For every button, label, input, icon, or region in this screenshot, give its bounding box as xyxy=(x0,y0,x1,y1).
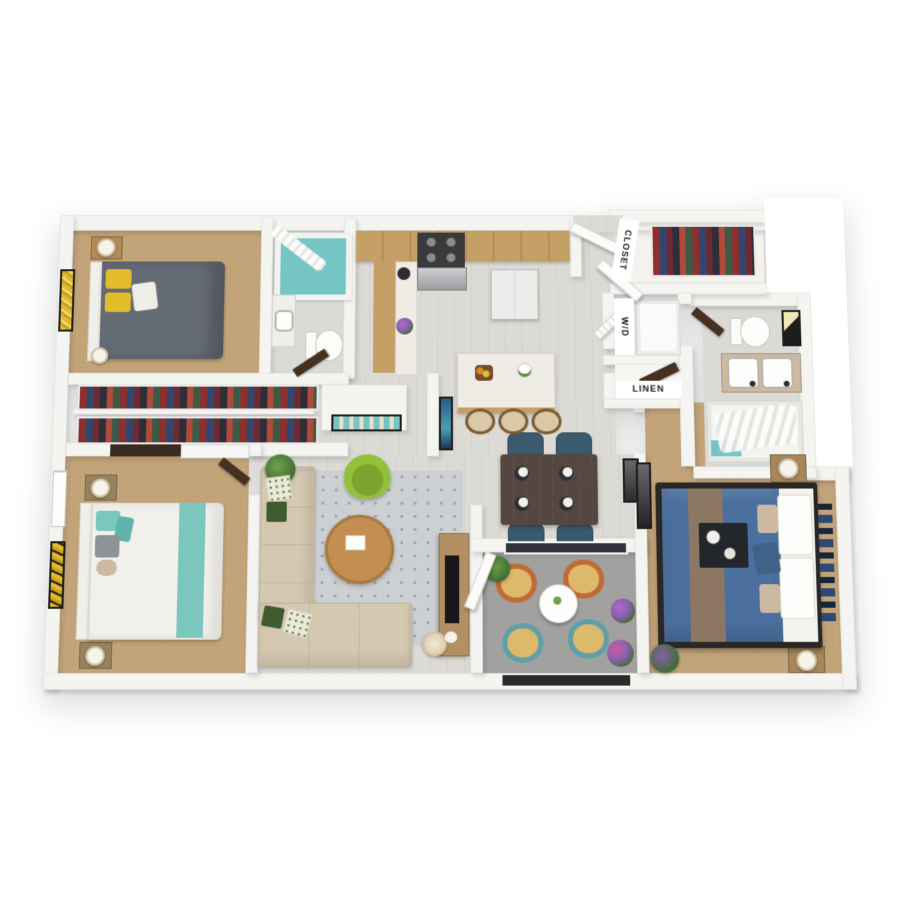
bedroom1-wall-art xyxy=(58,269,75,331)
patio-table-kiwi xyxy=(553,596,561,604)
bedroom1-pillow-yellow-2 xyxy=(105,293,131,312)
apartment-floorplan: CLOSET W/D LINEN xyxy=(43,210,858,701)
bedroom2-window xyxy=(51,470,67,527)
bedroom2-pillow-gray xyxy=(95,535,120,557)
master-lamp-bottom xyxy=(796,650,817,671)
tv-screen xyxy=(445,555,459,623)
washer-dryer-label: W/D xyxy=(614,298,635,355)
sofa-pillow-green-1 xyxy=(266,502,287,522)
island-stool-3 xyxy=(531,408,561,434)
kitchen-refrigerator xyxy=(491,269,539,320)
hall-closet-clothes-top xyxy=(77,385,318,411)
island-flower-vase xyxy=(517,363,532,378)
patio-chair-4 xyxy=(568,619,610,658)
patio-sliding-door xyxy=(504,541,628,554)
dining-place-setting-2 xyxy=(559,466,573,480)
hall-bath-sink xyxy=(274,310,293,332)
bedroom1-pillow-yellow-1 xyxy=(105,269,131,288)
patio-chair-3 xyxy=(502,623,543,662)
corridor-end-wall xyxy=(427,373,439,457)
kitchen-oven-front xyxy=(417,267,467,290)
kitchen-stove-cooktop xyxy=(417,233,465,268)
patio-plant-2 xyxy=(610,599,635,624)
peninsula-teal-art xyxy=(331,414,402,431)
master-pillow-1 xyxy=(777,495,813,556)
kitchen-counter-base xyxy=(373,262,396,373)
dining-place-setting-4 xyxy=(559,497,573,511)
notch-right-mid xyxy=(811,293,853,467)
master-breakfast-tray xyxy=(699,523,749,568)
floorplan-scene: CLOSET W/D LINEN xyxy=(43,210,858,701)
main-bath-faucet-2 xyxy=(784,381,790,387)
bedroom2-teal-runner xyxy=(176,503,206,638)
bedroom2-pillow-tan xyxy=(96,560,117,576)
patio-plant-3 xyxy=(607,640,634,667)
island-stool-2 xyxy=(498,408,528,434)
coffee-table-magazine xyxy=(345,535,365,550)
hall-closet-clothes-bottom xyxy=(76,416,318,444)
bedroom2-living-wall-top xyxy=(249,442,261,456)
master-pillow-2 xyxy=(779,558,816,620)
kitchen-counter-pot xyxy=(397,267,410,280)
dining-place-setting-3 xyxy=(515,497,529,511)
patio-bottom-window xyxy=(502,675,630,685)
master-plant xyxy=(650,644,679,673)
corridor-top-wall xyxy=(68,373,349,385)
dining-place-setting-1 xyxy=(515,466,529,480)
hallway-blue-art xyxy=(439,397,453,451)
washer-dryer-unit xyxy=(636,300,681,355)
main-bath-toilet-bowl xyxy=(740,316,771,347)
main-bath-wall-art xyxy=(781,310,801,346)
sofa-pillow-pattern-1 xyxy=(265,475,292,502)
console-decor xyxy=(445,632,457,643)
linen-label: LINEN xyxy=(615,381,681,398)
kitchen-counter-flowers xyxy=(396,318,413,335)
sofa-pillow-green-2 xyxy=(261,605,285,629)
master-accent-pillow-tan-1 xyxy=(757,505,778,533)
notch-top-right xyxy=(764,198,846,292)
master-lamp-top xyxy=(778,458,799,478)
bathroom-top-wall xyxy=(689,293,811,307)
bedroom2-closet-door-white xyxy=(181,444,250,458)
kitchen-island xyxy=(457,353,556,413)
bedroom2-closet-door-dark xyxy=(110,444,181,456)
bedroom2-wall-art xyxy=(48,541,66,609)
island-fruit-bowl xyxy=(475,365,493,381)
exterior-wall-bottom xyxy=(43,673,857,690)
island-stool-1 xyxy=(465,408,495,434)
closet-clothes-rack xyxy=(650,225,756,277)
master-accent-pillow-tan-2 xyxy=(759,584,780,613)
utility-right-wall-b xyxy=(679,345,696,466)
floor-lamp xyxy=(422,632,447,657)
floorplan-stage: CLOSET W/D LINEN xyxy=(0,0,900,900)
linen-bottom-wall xyxy=(604,399,689,409)
dining-table xyxy=(500,454,598,525)
master-accent-pillow-blue xyxy=(752,542,781,576)
bedroom1-pillow-white xyxy=(131,281,158,311)
main-bath-faucet-1 xyxy=(750,381,756,387)
master-west-wall-art xyxy=(636,462,652,529)
